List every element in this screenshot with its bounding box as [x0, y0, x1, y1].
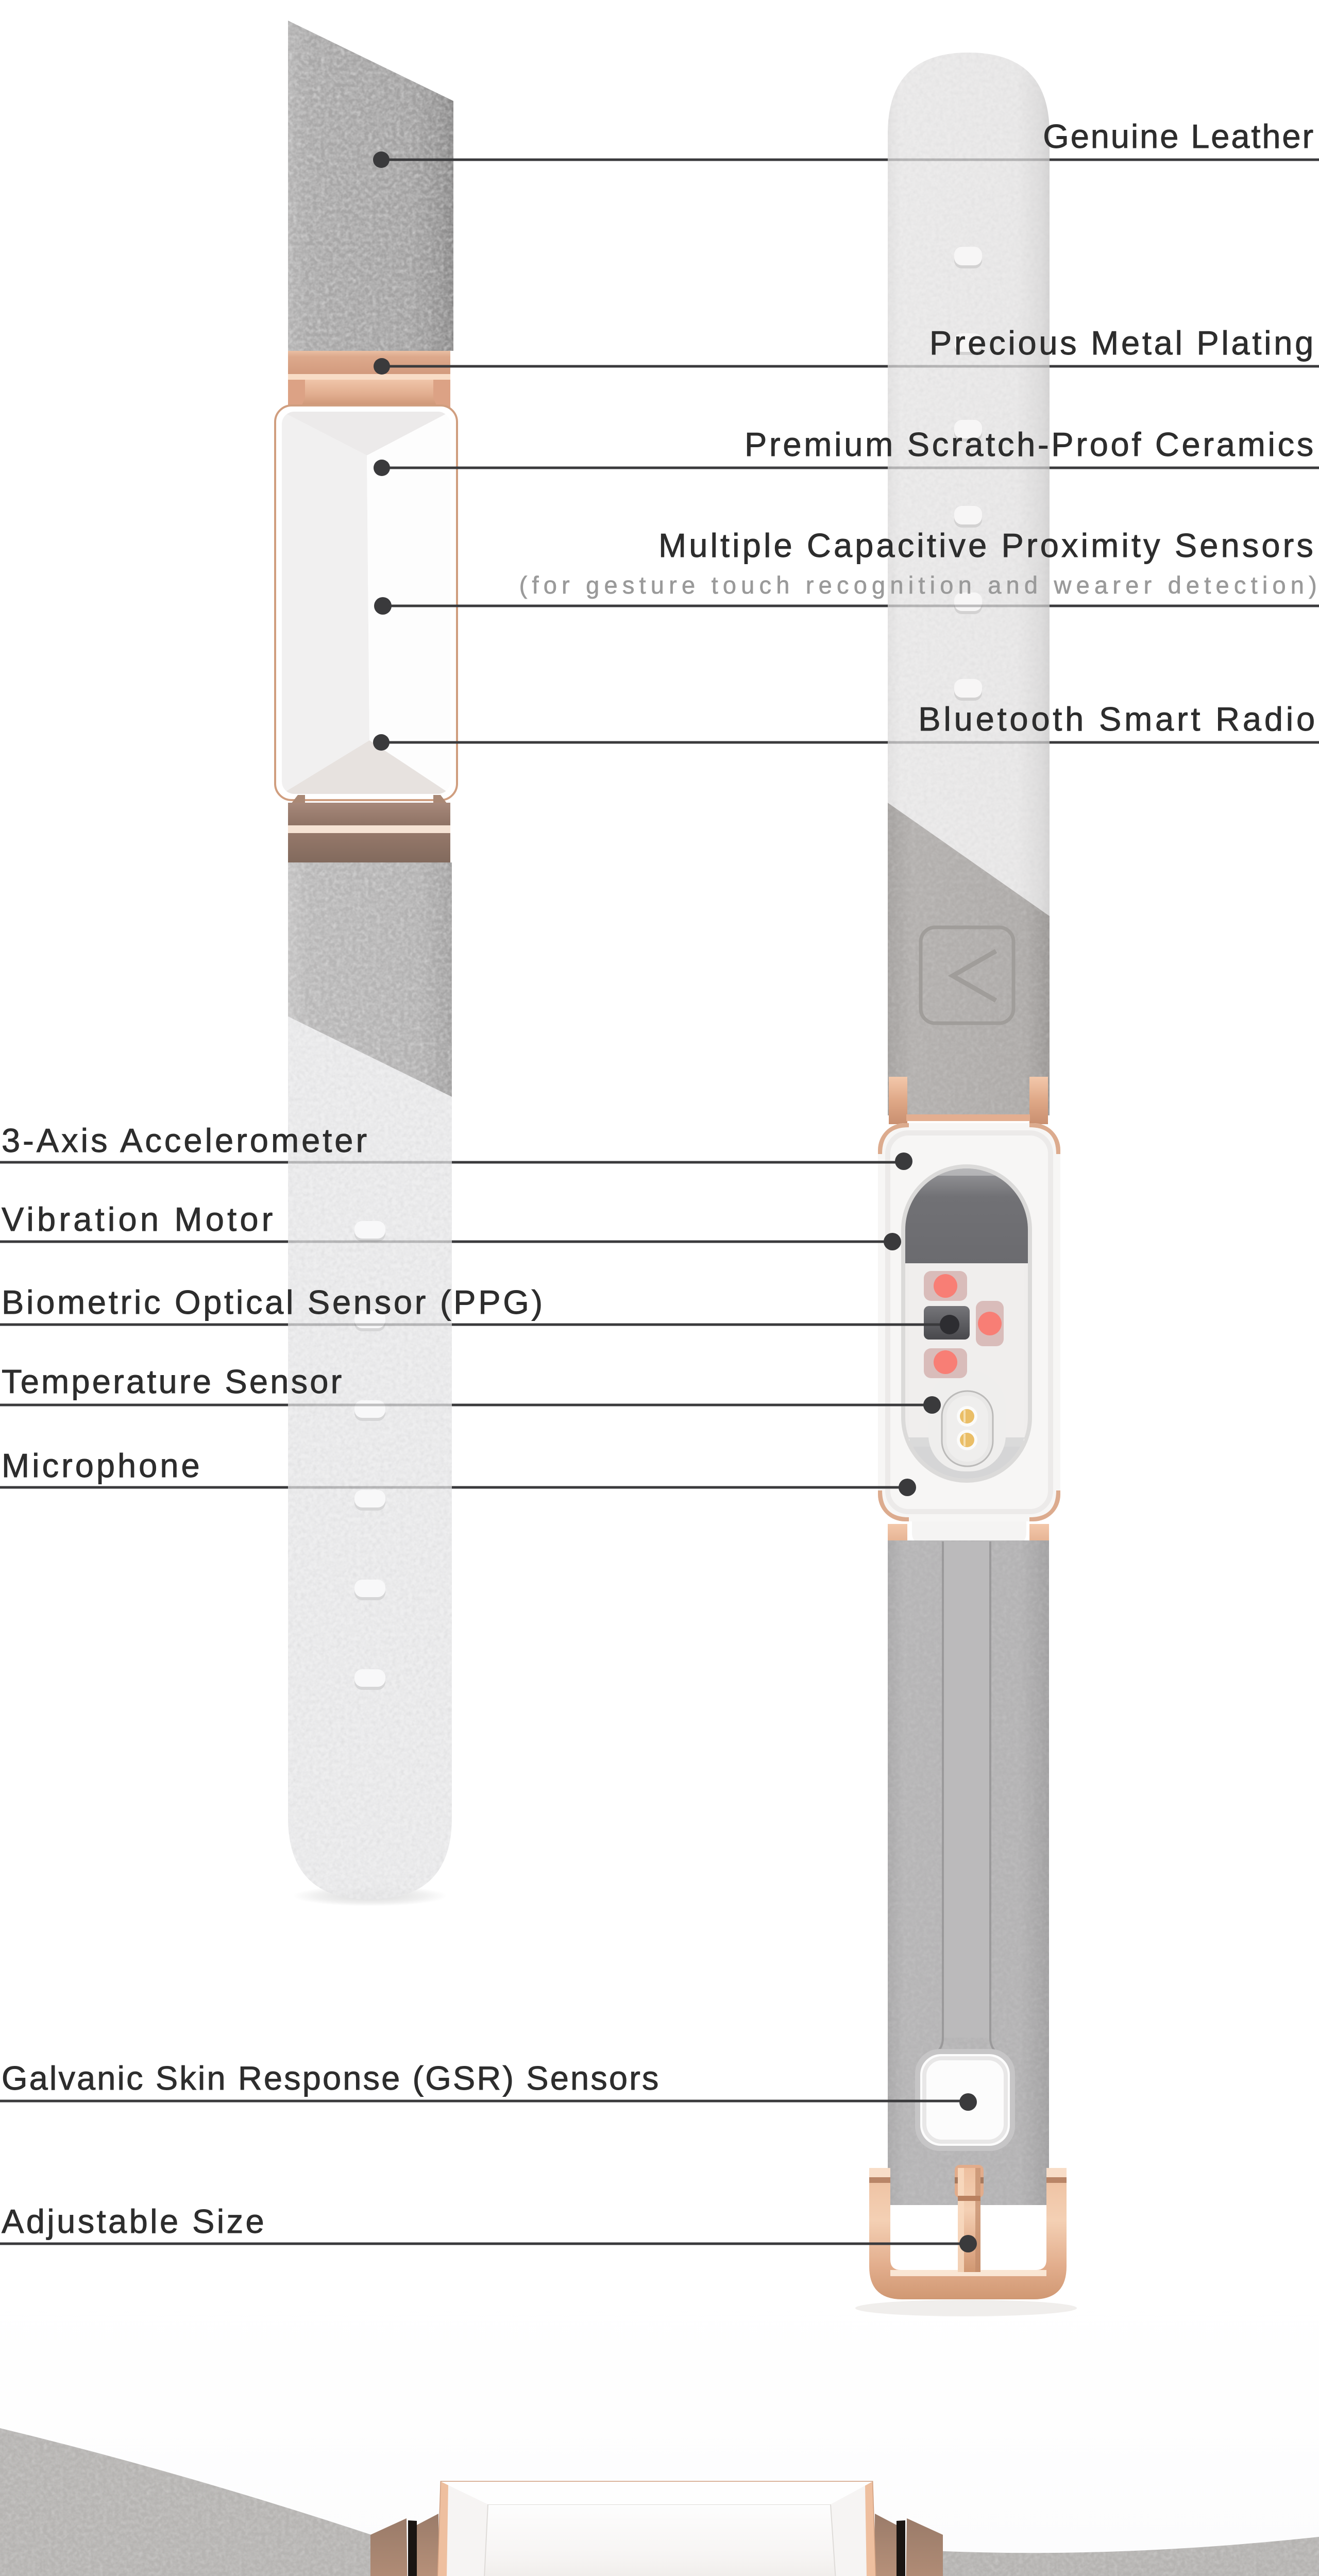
svg-text:Precious Metal Plating: Precious Metal Plating: [929, 324, 1316, 362]
svg-text:Galvanic Skin Response (GSR) S: Galvanic Skin Response (GSR) Sensors: [2, 2059, 660, 2097]
svg-text:Temperature Sensor: Temperature Sensor: [2, 1363, 344, 1400]
svg-text:Genuine Leather: Genuine Leather: [1043, 117, 1315, 155]
svg-text:Biometric Optical Sensor (PPG): Biometric Optical Sensor (PPG): [2, 1283, 545, 1321]
svg-text:Bluetooth Smart Radio: Bluetooth Smart Radio: [918, 700, 1318, 738]
svg-text:Premium Scratch-Proof Ceramics: Premium Scratch-Proof Ceramics: [745, 426, 1316, 463]
svg-text:3-Axis Accelerometer: 3-Axis Accelerometer: [2, 1122, 369, 1159]
svg-text:Microphone: Microphone: [2, 1447, 202, 1484]
svg-text:Adjustable Size: Adjustable Size: [2, 2202, 266, 2240]
svg-text:(for gesture touch recognition: (for gesture touch recognition and weare…: [519, 571, 1319, 599]
svg-text:Multiple Capacitive Proximity: Multiple Capacitive Proximity Sensors: [658, 527, 1316, 564]
svg-text:Vibration Motor: Vibration Motor: [2, 1200, 276, 1238]
